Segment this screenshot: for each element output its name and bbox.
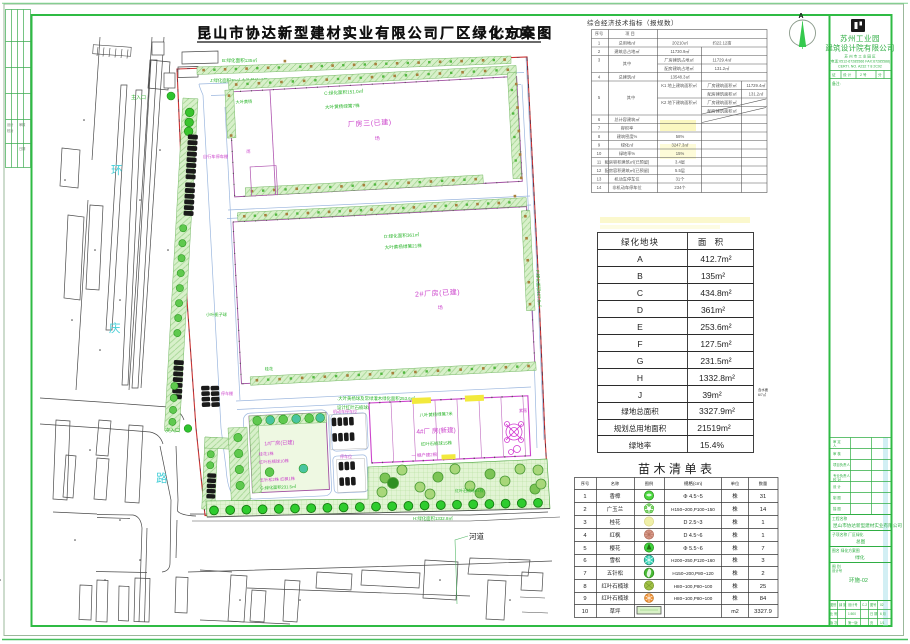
- svg-text:02: 02: [880, 603, 884, 607]
- svg-text:20210㎡: 20210㎡: [672, 40, 689, 46]
- svg-text:15%: 15%: [676, 151, 685, 156]
- svg-text:10: 10: [597, 151, 602, 156]
- svg-text:校对: 校对: [7, 128, 14, 133]
- svg-text:CERTI. NO. A232 7 8 2C92: CERTI. NO. A232 7 8 2C92: [838, 65, 882, 69]
- svg-text:J: J: [638, 390, 642, 400]
- svg-text:B:绿化面积135㎡: B:绿化面积135㎡: [222, 57, 257, 64]
- svg-text:Φ 4.5~5: Φ 4.5~5: [683, 494, 702, 500]
- svg-text:株: 株: [732, 569, 738, 577]
- svg-text:株: 株: [732, 594, 738, 602]
- svg-text:6 月: 6 月: [880, 612, 886, 616]
- svg-text:绿 施: 绿 施: [839, 602, 847, 607]
- svg-text:机动车停车位: 机动车停车位: [333, 408, 357, 414]
- svg-text:比 例: 比 例: [830, 611, 837, 616]
- svg-text:2: 2: [583, 507, 586, 513]
- svg-text:K2 地下建筑面积㎡: K2 地下建筑面积㎡: [661, 99, 697, 106]
- svg-text:G: G: [637, 356, 644, 366]
- svg-text:其中: 其中: [623, 60, 631, 67]
- svg-text:小叶栀子球: 小叶栀子球: [206, 311, 228, 318]
- svg-text:配房容积建筑㎡(已预留): 配房容积建筑㎡(已预留): [605, 167, 650, 174]
- svg-text:场: 场: [375, 135, 380, 142]
- svg-text:其中: 其中: [627, 94, 635, 101]
- svg-text:建筑设计院有限公司: 建筑设计院有限公司: [825, 43, 894, 53]
- svg-text:审 核: 审 核: [833, 451, 841, 456]
- svg-text:苗木清单表: 苗木清单表: [638, 462, 716, 476]
- svg-text:序号: 序号: [595, 30, 603, 37]
- svg-text:广玉兰: 广玉兰: [607, 505, 624, 513]
- svg-text:13: 13: [597, 177, 602, 182]
- svg-text:58%: 58%: [676, 134, 685, 139]
- svg-text:备注:: 备注:: [832, 81, 841, 86]
- svg-text:五针松: 五针松: [607, 569, 624, 577]
- svg-text:图号: 图号: [870, 602, 876, 607]
- svg-text:绿化㎡: 绿化㎡: [621, 142, 634, 149]
- svg-text:m2: m2: [731, 609, 739, 615]
- svg-text:面 积: 面 积: [698, 237, 726, 247]
- svg-text:总建筑㎡: 总建筑㎡: [619, 74, 637, 81]
- svg-text:序号: 序号: [581, 480, 589, 487]
- svg-text:11730.9㎡: 11730.9㎡: [670, 48, 690, 54]
- svg-text:231.5m²: 231.5m²: [700, 356, 731, 366]
- svg-text:7: 7: [583, 571, 586, 577]
- svg-text:自行车停车棚: 自行车停车棚: [203, 153, 228, 160]
- svg-text:雪松: 雪松: [610, 556, 621, 564]
- svg-text:135m²: 135m²: [701, 271, 725, 281]
- svg-text:工程名称: 工程名称: [832, 516, 847, 521]
- svg-text:1: 1: [761, 520, 764, 526]
- svg-text:9: 9: [583, 596, 586, 602]
- svg-text:434.8m²: 434.8m²: [700, 288, 731, 298]
- svg-text:31: 31: [760, 494, 766, 500]
- svg-text:Φ 5.5~6: Φ 5.5~6: [683, 546, 702, 552]
- svg-text:环: 环: [111, 165, 123, 177]
- svg-text:127.5m²: 127.5m²: [700, 339, 731, 349]
- svg-text:株: 株: [732, 505, 738, 513]
- svg-text:D 2.5~3: D 2.5~3: [683, 520, 702, 526]
- svg-text:株: 株: [732, 544, 738, 552]
- svg-text:厂房建筑面积㎡: 厂房建筑面积㎡: [707, 99, 737, 106]
- svg-text:14: 14: [760, 507, 767, 513]
- svg-text:H80~100,P80~100: H80~100,P80~100: [674, 596, 713, 601]
- svg-text:建筑总占地㎡: 建筑总占地㎡: [614, 48, 640, 55]
- svg-text:次入口: 次入口: [165, 427, 180, 434]
- svg-text:14: 14: [597, 185, 602, 190]
- svg-text:设计: 设计: [7, 122, 14, 127]
- svg-text:总计容建筑㎡: 总计容建筑㎡: [614, 116, 640, 123]
- svg-text:约22.12亩: 约22.12亩: [713, 40, 732, 47]
- svg-text:1332.8m²: 1332.8m²: [699, 373, 735, 383]
- svg-text:名称: 名称: [611, 480, 619, 487]
- svg-text:253.6m²: 253.6m²: [700, 322, 731, 332]
- svg-text:红叶石楠球: 红叶石楠球: [602, 594, 630, 602]
- svg-text:11729.4㎡: 11729.4㎡: [746, 82, 766, 88]
- svg-text:页: 页: [870, 621, 873, 625]
- svg-text:红枫: 红枫: [610, 531, 621, 539]
- svg-text:10: 10: [582, 609, 588, 615]
- svg-text:单位: 单位: [731, 480, 739, 487]
- svg-text:配房容积建筑㎡(已预留): 配房容积建筑㎡(已预留): [605, 159, 650, 166]
- svg-text:厂房建筑占地㎡: 厂房建筑占地㎡: [664, 57, 694, 64]
- svg-text:日 期: 日 期: [870, 611, 877, 616]
- svg-text:D 4.5~6: D 4.5~6: [683, 533, 702, 539]
- svg-text:图例: 图例: [645, 480, 653, 487]
- svg-text:项目负责人: 项目负责人: [833, 462, 851, 467]
- svg-text:描 图: 描 图: [833, 506, 841, 511]
- svg-text:株: 株: [732, 531, 738, 539]
- svg-text:审核: 审核: [19, 122, 26, 127]
- svg-text:31个: 31个: [676, 177, 686, 182]
- svg-text:规格(cm): 规格(cm): [684, 480, 703, 487]
- svg-text:株: 株: [732, 582, 738, 590]
- svg-text:主入口: 主入口: [131, 94, 146, 101]
- svg-text:庆: 庆: [109, 321, 121, 335]
- svg-text:红叶石楠球84株: 红叶石楠球84株: [455, 487, 483, 493]
- svg-text:证: 证: [832, 72, 836, 77]
- svg-text:H:绿化面积1332.8㎡: H:绿化面积1332.8㎡: [413, 515, 453, 522]
- svg-text:1: 1: [583, 494, 586, 500]
- svg-text:校 对: 校 对: [833, 477, 841, 482]
- svg-text:5: 5: [583, 546, 586, 552]
- svg-text:香樟: 香樟: [610, 492, 621, 500]
- svg-text:含水面: 含水面: [758, 387, 769, 392]
- svg-text:子项名称 厂区绿化: 子项名称 厂区绿化: [832, 532, 864, 537]
- svg-text:场: 场: [438, 304, 443, 311]
- svg-text:苏州工业园: 苏州工业园: [840, 33, 880, 43]
- svg-text:1: 1: [761, 533, 764, 539]
- svg-text:总用地㎡: 总用地㎡: [619, 40, 637, 47]
- svg-text:株: 株: [732, 518, 738, 526]
- svg-text:设 计: 设 计: [843, 72, 852, 77]
- svg-text:规划总用地面积: 规划总用地面积: [614, 423, 667, 433]
- svg-text:B: B: [637, 271, 643, 281]
- svg-text:13548.3㎡: 13548.3㎡: [670, 74, 690, 80]
- svg-text:H150~200,P100~150: H150~200,P100~150: [671, 507, 715, 512]
- svg-text:环施-02: 环施-02: [849, 576, 868, 584]
- svg-text:制 图: 制 图: [833, 495, 841, 500]
- svg-text:综合经济技术指标（报规数）: 综合经济技术指标（报规数）: [587, 18, 678, 27]
- svg-text:版 次: 版 次: [830, 620, 838, 625]
- svg-text:设 计: 设 计: [833, 484, 841, 489]
- svg-text:12: 12: [597, 168, 602, 173]
- svg-text:红叶石楠球: 红叶石楠球: [602, 582, 630, 590]
- svg-text:1:500: 1:500: [491, 26, 533, 42]
- svg-text:图别: 图别: [830, 602, 836, 607]
- svg-text:E: E: [637, 322, 643, 332]
- svg-text:配房建筑面积㎡: 配房建筑面积㎡: [707, 108, 737, 115]
- svg-text:株: 株: [732, 556, 738, 564]
- svg-text:厂房建筑面积㎡: 厂房建筑面积㎡: [707, 82, 737, 89]
- svg-text:(电话:0512-67285566 FAX:6728558: (电话:0512-67285566 FAX:67285588): [830, 59, 891, 64]
- svg-text:1/1: 1/1: [880, 621, 885, 625]
- svg-text:84: 84: [760, 596, 767, 602]
- svg-text:K1 地上建筑面积㎡: K1 地上建筑面积㎡: [661, 82, 697, 89]
- svg-text:3327.9m²: 3327.9m²: [699, 406, 735, 416]
- svg-text:建筑密度%: 建筑密度%: [617, 133, 638, 140]
- svg-text:机动车停车位: 机动车停车位: [614, 176, 639, 183]
- svg-text:绿地率%: 绿地率%: [619, 150, 636, 157]
- svg-text:H150~200,P80~120: H150~200,P80~120: [672, 571, 714, 576]
- svg-text:停车棚: 停车棚: [221, 390, 233, 396]
- svg-text:3247.3㎡: 3247.3㎡: [672, 142, 690, 148]
- svg-text:11: 11: [597, 160, 602, 165]
- svg-text:7: 7: [761, 546, 764, 552]
- svg-text:131.2㎡: 131.2㎡: [749, 91, 764, 97]
- svg-text:25: 25: [760, 584, 766, 590]
- svg-text:设计号: 设计号: [832, 568, 843, 573]
- svg-text:容积率: 容积率: [621, 125, 634, 132]
- svg-text:15.4%: 15.4%: [700, 440, 725, 450]
- svg-text:绿地总面积: 绿地总面积: [621, 406, 659, 416]
- svg-text:日期: 日期: [19, 146, 25, 151]
- svg-text:昆山市协达新型建材实业有限公司: 昆山市协达新型建材实业有限公司: [833, 522, 902, 529]
- svg-text:A: A: [799, 13, 804, 20]
- svg-text:第一版: 第一版: [848, 620, 858, 625]
- svg-text:樱花: 樱花: [610, 544, 621, 552]
- svg-text:设计号: 设计号: [848, 602, 858, 607]
- svg-text:131.2㎡: 131.2㎡: [715, 65, 730, 71]
- svg-text:绿化地块: 绿化地块: [621, 237, 659, 247]
- svg-text:非机动车停车位: 非机动车停车位: [612, 184, 641, 191]
- svg-text:分: 分: [878, 72, 882, 77]
- svg-text:2 号: 2 号: [860, 72, 867, 77]
- svg-text:8: 8: [583, 584, 586, 590]
- svg-text:总图: 总图: [856, 538, 866, 545]
- svg-text:11729.4㎡: 11729.4㎡: [712, 57, 732, 63]
- svg-text:H80~100,P80~100: H80~100,P80~100: [674, 584, 713, 589]
- svg-text:3: 3: [583, 520, 586, 526]
- svg-text:6: 6: [583, 558, 586, 564]
- svg-text:A: A: [637, 254, 643, 264]
- svg-text:3: 3: [761, 558, 764, 564]
- svg-text:21519m²: 21519m²: [697, 423, 731, 433]
- svg-text:绿化: 绿化: [855, 554, 865, 561]
- svg-text:2: 2: [761, 571, 764, 577]
- svg-text:紫薇: 紫薇: [519, 407, 527, 413]
- svg-text:6/7㎡: 6/7㎡: [758, 392, 767, 397]
- svg-text:F: F: [637, 339, 642, 349]
- svg-text:412.7m²: 412.7m²: [700, 254, 731, 264]
- svg-text:234个: 234个: [674, 185, 686, 190]
- svg-text:株: 株: [732, 492, 738, 500]
- svg-text:配房建筑面积㎡: 配房建筑面积㎡: [707, 91, 737, 98]
- svg-text:1:500: 1:500: [848, 612, 856, 616]
- svg-text:绿地率: 绿地率: [629, 440, 652, 450]
- svg-text:桂花: 桂花: [610, 518, 621, 526]
- svg-text:数量: 数量: [759, 480, 767, 487]
- svg-text:C-2: C-2: [862, 603, 867, 607]
- svg-text:路: 路: [156, 471, 168, 485]
- svg-text:C: C: [637, 288, 643, 298]
- svg-text:苏 州 市 工 业 园 区: 苏 州 市 工 业 园 区: [844, 54, 876, 59]
- svg-text:草坪: 草坪: [610, 607, 621, 615]
- svg-text:配房建筑占地㎡: 配房建筑占地㎡: [664, 65, 694, 72]
- svg-text:H: H: [637, 373, 643, 383]
- svg-text:H200~250,P120~160: H200~250,P120~160: [671, 558, 715, 563]
- svg-text:39m²: 39m²: [702, 390, 722, 400]
- svg-text:图名 绿化方案图: 图名 绿化方案图: [832, 548, 860, 553]
- svg-text:D: D: [637, 305, 643, 315]
- svg-text:3327.9: 3327.9: [754, 609, 772, 615]
- svg-text:停车位: 停车位: [340, 453, 352, 459]
- svg-text:361m²: 361m²: [701, 305, 725, 315]
- svg-text:河道: 河道: [469, 531, 484, 541]
